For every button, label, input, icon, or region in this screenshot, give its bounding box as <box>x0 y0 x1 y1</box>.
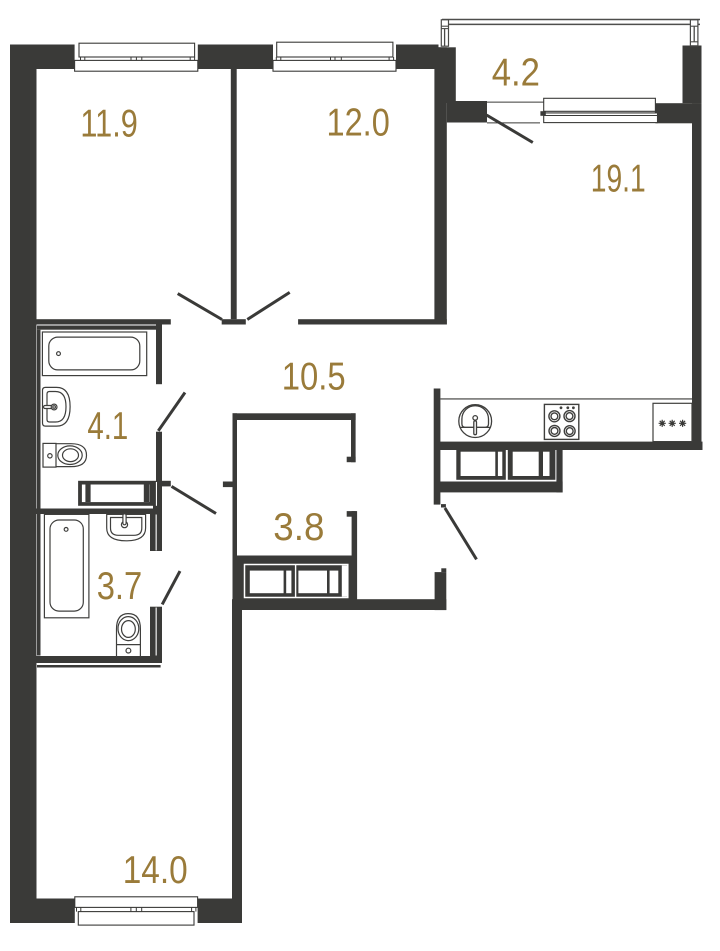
svg-text:3.7: 3.7 <box>97 565 143 608</box>
svg-text:4.1: 4.1 <box>87 405 128 448</box>
svg-text:14.0: 14.0 <box>123 849 188 892</box>
svg-text:12.0: 12.0 <box>327 102 390 145</box>
svg-text:11.9: 11.9 <box>80 103 137 146</box>
svg-text:4.2: 4.2 <box>492 52 540 95</box>
svg-text:3.8: 3.8 <box>273 506 324 549</box>
svg-text:10.5: 10.5 <box>282 355 346 398</box>
svg-text:19.1: 19.1 <box>591 158 646 201</box>
